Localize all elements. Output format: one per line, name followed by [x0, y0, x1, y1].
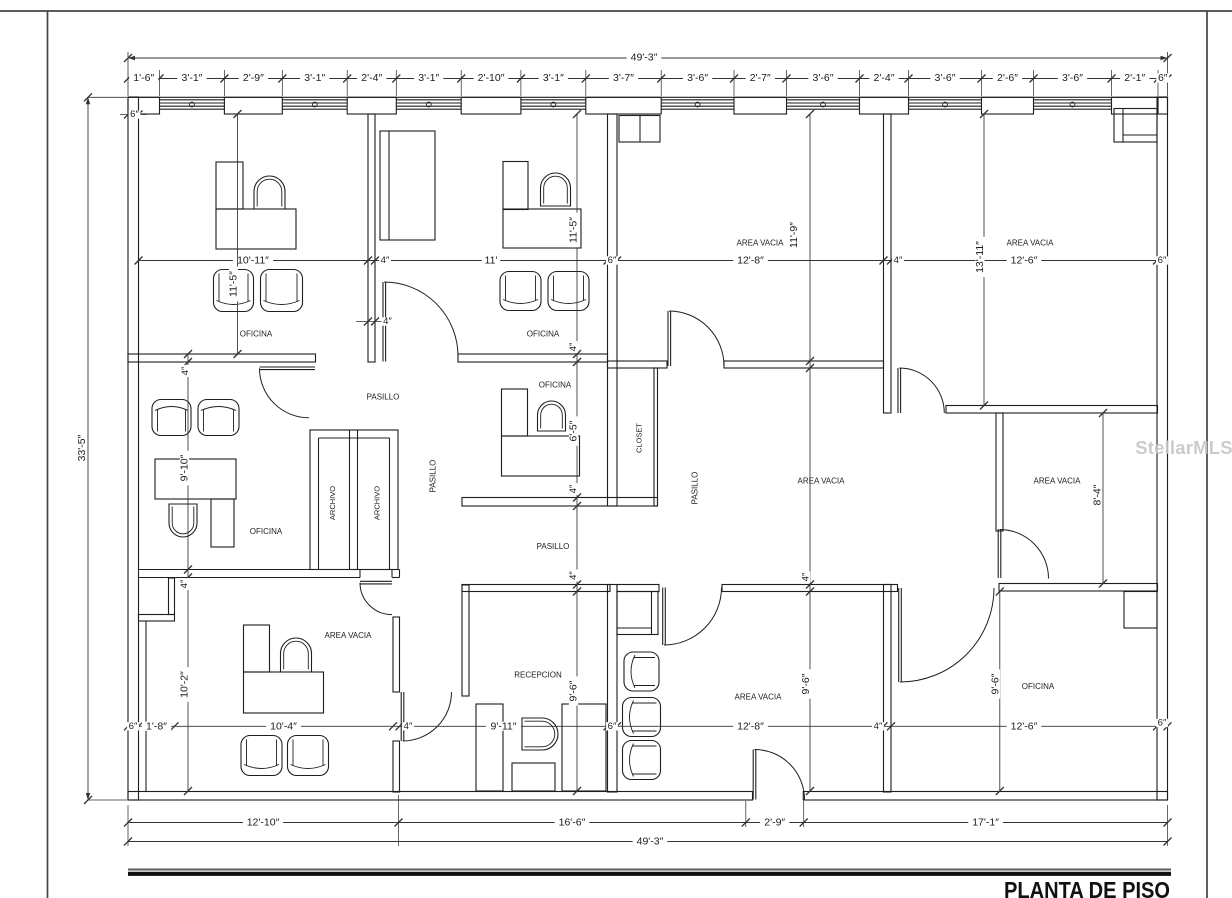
svg-text:4″: 4″	[568, 571, 579, 580]
svg-text:3'-1″: 3'-1″	[543, 72, 564, 84]
svg-text:4″: 4″	[180, 366, 191, 375]
svg-text:4″: 4″	[404, 721, 413, 732]
svg-text:AREA VACIA: AREA VACIA	[735, 693, 783, 702]
svg-text:3'-1″: 3'-1″	[304, 72, 325, 84]
svg-text:11'-9″: 11'-9″	[788, 222, 800, 248]
svg-text:4″: 4″	[894, 255, 903, 266]
svg-text:6″: 6″	[1158, 72, 1168, 84]
svg-text:PASILLO: PASILLO	[537, 542, 570, 551]
svg-text:4″: 4″	[179, 579, 190, 588]
svg-text:ARCHIVO: ARCHIVO	[328, 486, 337, 520]
svg-text:2'-6″: 2'-6″	[997, 72, 1018, 84]
svg-text:4″: 4″	[568, 342, 579, 351]
svg-text:AREA VACIA: AREA VACIA	[1034, 477, 1082, 486]
svg-text:9'-6″: 9'-6″	[568, 680, 580, 701]
svg-text:PASILLO: PASILLO	[691, 472, 700, 505]
svg-text:OFICINA: OFICINA	[240, 330, 273, 339]
svg-text:OFICINA: OFICINA	[539, 381, 572, 390]
svg-text:AREA VACIA: AREA VACIA	[325, 631, 373, 640]
svg-text:PASILLO: PASILLO	[367, 393, 400, 402]
svg-text:4″: 4″	[801, 572, 812, 581]
svg-text:2'-7″: 2'-7″	[750, 72, 771, 84]
svg-text:12'-6″: 12'-6″	[1011, 720, 1038, 732]
svg-text:3'-1″: 3'-1″	[418, 72, 439, 84]
svg-text:49'-3″: 49'-3″	[631, 52, 658, 64]
svg-text:2'-9″: 2'-9″	[243, 72, 264, 84]
svg-text:8'-4″: 8'-4″	[1092, 484, 1104, 505]
svg-text:9'-6″: 9'-6″	[990, 673, 1002, 694]
svg-text:CLOSET: CLOSET	[635, 423, 644, 453]
svg-text:9'-11″: 9'-11″	[491, 720, 517, 732]
svg-text:ARCHIVO: ARCHIVO	[373, 486, 382, 520]
svg-text:2'-10″: 2'-10″	[478, 72, 505, 84]
svg-text:PASILLO: PASILLO	[429, 460, 438, 493]
svg-text:9'-10″: 9'-10″	[179, 454, 191, 481]
svg-text:11'-5″: 11'-5″	[568, 217, 580, 243]
svg-text:10'-4″: 10'-4″	[270, 720, 297, 732]
svg-text:StellarMLS: StellarMLS	[1135, 437, 1232, 458]
svg-text:2'-1″: 2'-1″	[1124, 72, 1145, 84]
svg-text:6″: 6″	[129, 721, 138, 732]
svg-text:12'-10″: 12'-10″	[247, 817, 280, 829]
svg-text:10'-11″: 10'-11″	[237, 255, 269, 267]
svg-text:3'-6″: 3'-6″	[687, 72, 708, 84]
svg-text:11'-5″: 11'-5″	[228, 271, 240, 297]
svg-text:12'-8″: 12'-8″	[737, 720, 764, 732]
svg-text:2'-4″: 2'-4″	[361, 72, 382, 84]
svg-text:6″: 6″	[1158, 718, 1167, 729]
svg-text:17'-1″: 17'-1″	[972, 817, 999, 829]
svg-text:OFICINA: OFICINA	[527, 330, 560, 339]
svg-text:3'-6″: 3'-6″	[1062, 72, 1083, 84]
svg-text:6″: 6″	[608, 721, 617, 732]
svg-text:6″: 6″	[1158, 255, 1167, 266]
svg-text:1'-8″: 1'-8″	[146, 720, 167, 732]
svg-text:RECEPCION: RECEPCION	[514, 671, 562, 680]
svg-text:AREA VACIA: AREA VACIA	[1007, 239, 1055, 248]
svg-text:PLANTA DE PISO: PLANTA DE PISO	[1004, 877, 1170, 898]
svg-text:11': 11'	[485, 255, 498, 267]
svg-text:9'-6″: 9'-6″	[800, 673, 812, 694]
svg-text:AREA VACIA: AREA VACIA	[737, 239, 785, 248]
svg-text:33'-5″: 33'-5″	[76, 434, 88, 461]
svg-text:6″: 6″	[130, 109, 139, 120]
svg-text:OFICINA: OFICINA	[1022, 682, 1055, 691]
svg-text:13'-11″: 13'-11″	[974, 241, 986, 273]
svg-text:6'-5″: 6'-5″	[568, 420, 580, 441]
svg-text:4″: 4″	[568, 484, 579, 493]
svg-text:6″: 6″	[608, 255, 617, 266]
svg-text:4″: 4″	[383, 316, 392, 327]
svg-text:AREA VACIA: AREA VACIA	[798, 477, 846, 486]
svg-text:10'-2″: 10'-2″	[179, 671, 191, 698]
svg-text:4″: 4″	[381, 255, 390, 266]
svg-text:3'-6″: 3'-6″	[935, 72, 956, 84]
svg-text:2'-4″: 2'-4″	[874, 72, 895, 84]
svg-text:16'-6″: 16'-6″	[559, 817, 586, 829]
svg-text:1'-6″: 1'-6″	[133, 72, 154, 84]
svg-text:2'-9″: 2'-9″	[764, 817, 785, 829]
svg-text:12'-6″: 12'-6″	[1011, 255, 1038, 267]
svg-text:49'-3″: 49'-3″	[637, 836, 664, 848]
svg-text:OFICINA: OFICINA	[250, 527, 283, 536]
svg-text:3'-6″: 3'-6″	[813, 72, 834, 84]
svg-text:3'-7″: 3'-7″	[613, 72, 634, 84]
svg-text:12'-8″: 12'-8″	[737, 255, 764, 267]
svg-text:3'-1″: 3'-1″	[181, 72, 202, 84]
svg-text:4″: 4″	[874, 721, 883, 732]
